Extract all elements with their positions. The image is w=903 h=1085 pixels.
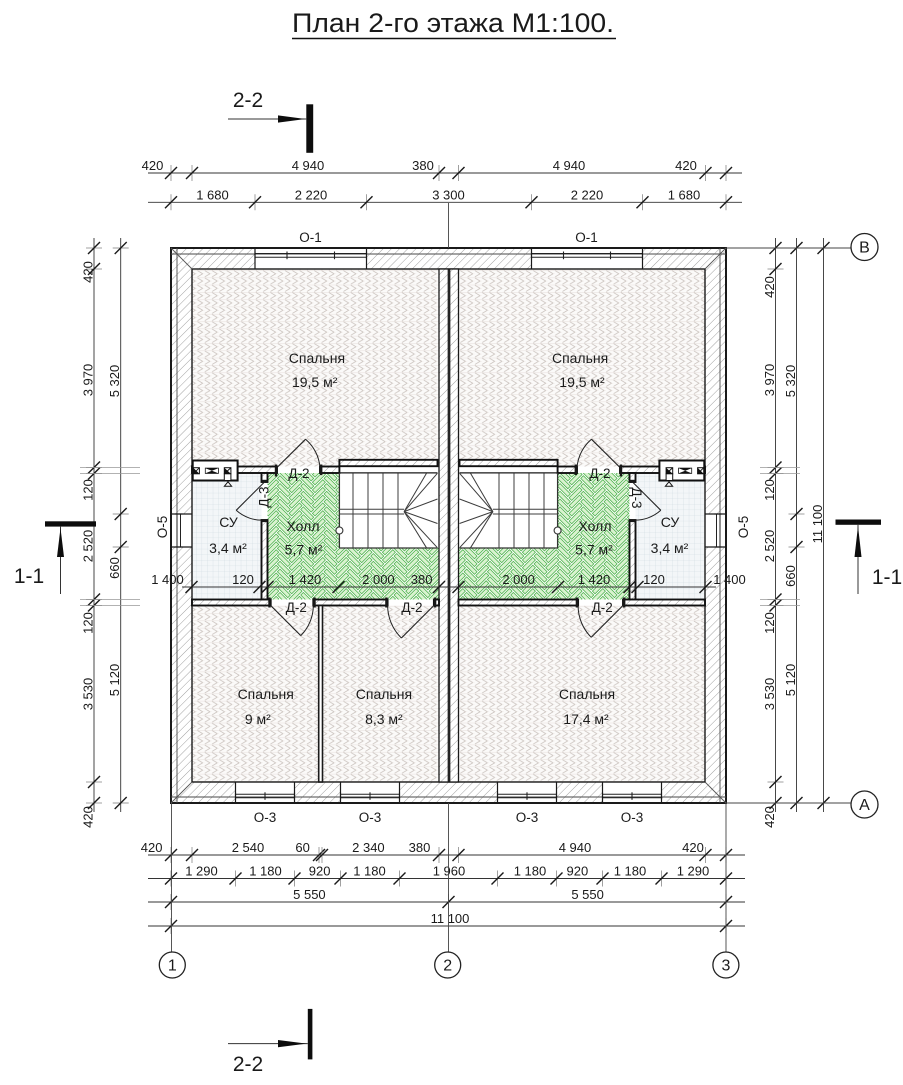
svg-text:2 220: 2 220 bbox=[295, 187, 328, 202]
svg-text:920: 920 bbox=[309, 864, 331, 879]
svg-text:3,4 м²: 3,4 м² bbox=[651, 540, 689, 556]
svg-text:9 м²: 9 м² bbox=[245, 711, 271, 727]
svg-text:Спальня: Спальня bbox=[552, 350, 608, 366]
svg-text:420: 420 bbox=[141, 840, 163, 855]
svg-text:1 180: 1 180 bbox=[353, 864, 386, 879]
svg-text:660: 660 bbox=[783, 565, 798, 587]
svg-text:2: 2 bbox=[443, 958, 452, 975]
svg-text:Холл: Холл bbox=[579, 518, 612, 534]
svg-text:Д-2: Д-2 bbox=[589, 466, 610, 481]
svg-text:1-1: 1-1 bbox=[872, 566, 902, 589]
svg-text:3 970: 3 970 bbox=[81, 364, 96, 397]
svg-text:11 100: 11 100 bbox=[431, 911, 470, 926]
svg-text:1: 1 bbox=[168, 958, 177, 975]
svg-text:4 940: 4 940 bbox=[553, 158, 586, 173]
svg-text:920: 920 bbox=[567, 864, 589, 879]
svg-text:О-1: О-1 bbox=[575, 230, 598, 245]
svg-text:1 400: 1 400 bbox=[713, 572, 746, 587]
svg-text:380: 380 bbox=[412, 158, 434, 173]
svg-text:1 960: 1 960 bbox=[433, 864, 466, 879]
svg-text:Д-2: Д-2 bbox=[288, 466, 309, 481]
svg-text:1 180: 1 180 bbox=[614, 864, 647, 879]
svg-text:2-2: 2-2 bbox=[233, 89, 263, 112]
svg-text:О-3: О-3 bbox=[359, 810, 382, 825]
svg-text:Холл: Холл bbox=[287, 518, 320, 534]
svg-text:Спальня: Спальня bbox=[289, 350, 345, 366]
svg-text:8,3 м²: 8,3 м² bbox=[365, 711, 403, 727]
svg-text:3 530: 3 530 bbox=[81, 678, 96, 711]
svg-text:5 320: 5 320 bbox=[783, 365, 798, 398]
svg-text:5,7 м²: 5,7 м² bbox=[575, 542, 613, 558]
svg-text:120: 120 bbox=[232, 572, 254, 587]
svg-text:Д-3: Д-3 bbox=[629, 487, 644, 508]
svg-text:380: 380 bbox=[409, 840, 431, 855]
svg-text:120: 120 bbox=[643, 572, 665, 587]
svg-text:План 2-го этажа М1:100.: План 2-го этажа М1:100. bbox=[292, 8, 614, 38]
svg-text:5 550: 5 550 bbox=[293, 887, 326, 902]
svg-text:5 120: 5 120 bbox=[783, 664, 798, 697]
svg-text:3 300: 3 300 bbox=[432, 187, 465, 202]
svg-text:Д-2: Д-2 bbox=[592, 600, 613, 615]
svg-text:420: 420 bbox=[675, 158, 697, 173]
svg-text:1 680: 1 680 bbox=[668, 187, 701, 202]
svg-text:3 530: 3 530 bbox=[762, 678, 777, 711]
svg-text:5,7 м²: 5,7 м² bbox=[285, 542, 323, 558]
svg-text:СУ: СУ bbox=[661, 514, 680, 530]
svg-text:1-1: 1-1 bbox=[14, 565, 44, 588]
svg-text:60: 60 bbox=[295, 840, 309, 855]
svg-text:Д-2: Д-2 bbox=[401, 600, 422, 615]
svg-text:2 520: 2 520 bbox=[762, 530, 777, 563]
svg-text:1 420: 1 420 bbox=[289, 572, 322, 587]
svg-text:120: 120 bbox=[762, 612, 777, 634]
svg-text:19,5 м²: 19,5 м² bbox=[292, 374, 338, 390]
svg-text:А: А bbox=[859, 797, 870, 814]
svg-text:О-5: О-5 bbox=[736, 516, 751, 539]
svg-text:Спальня: Спальня bbox=[356, 686, 412, 702]
svg-text:1 180: 1 180 bbox=[514, 864, 547, 879]
svg-text:5 120: 5 120 bbox=[107, 664, 122, 697]
svg-text:420: 420 bbox=[81, 806, 96, 828]
svg-text:420: 420 bbox=[762, 806, 777, 828]
svg-text:120: 120 bbox=[81, 612, 96, 634]
svg-text:О-3: О-3 bbox=[254, 810, 277, 825]
svg-text:19,5 м²: 19,5 м² bbox=[559, 374, 605, 390]
svg-text:О-1: О-1 bbox=[299, 230, 322, 245]
svg-text:420: 420 bbox=[81, 261, 96, 283]
svg-text:1 290: 1 290 bbox=[677, 864, 710, 879]
svg-text:3: 3 bbox=[721, 958, 730, 975]
svg-text:4 940: 4 940 bbox=[292, 158, 325, 173]
svg-text:120: 120 bbox=[762, 479, 777, 501]
svg-text:Спальня: Спальня bbox=[238, 686, 294, 702]
svg-text:2 000: 2 000 bbox=[362, 572, 395, 587]
svg-text:1 180: 1 180 bbox=[249, 864, 282, 879]
svg-text:3,4 м²: 3,4 м² bbox=[209, 540, 247, 556]
svg-text:660: 660 bbox=[107, 557, 122, 579]
svg-text:2 540: 2 540 bbox=[232, 840, 265, 855]
svg-text:420: 420 bbox=[142, 158, 164, 173]
svg-text:1 400: 1 400 bbox=[151, 572, 184, 587]
svg-text:Д-2: Д-2 bbox=[286, 600, 307, 615]
svg-text:1 290: 1 290 bbox=[185, 864, 218, 879]
svg-text:17,4 м²: 17,4 м² bbox=[563, 711, 609, 727]
svg-text:О-5: О-5 bbox=[155, 516, 170, 539]
svg-text:О-3: О-3 bbox=[621, 810, 644, 825]
svg-text:3 970: 3 970 bbox=[762, 364, 777, 397]
svg-text:1 680: 1 680 bbox=[196, 187, 229, 202]
svg-text:Спальня: Спальня bbox=[559, 686, 615, 702]
svg-text:5 320: 5 320 bbox=[107, 365, 122, 398]
svg-text:5 550: 5 550 bbox=[571, 887, 604, 902]
svg-text:В: В bbox=[859, 240, 870, 257]
svg-text:Д-3: Д-3 bbox=[257, 486, 272, 507]
svg-text:2 220: 2 220 bbox=[571, 187, 604, 202]
svg-text:120: 120 bbox=[81, 479, 96, 501]
svg-text:2 340: 2 340 bbox=[352, 840, 385, 855]
svg-text:2 520: 2 520 bbox=[81, 530, 96, 563]
svg-text:380: 380 bbox=[411, 572, 433, 587]
svg-text:СУ: СУ bbox=[219, 514, 238, 530]
svg-text:11 100: 11 100 bbox=[810, 505, 825, 544]
svg-text:420: 420 bbox=[682, 840, 704, 855]
svg-text:1 420: 1 420 bbox=[578, 572, 611, 587]
svg-text:2 000: 2 000 bbox=[502, 572, 535, 587]
svg-text:О-3: О-3 bbox=[516, 810, 539, 825]
svg-text:2-2: 2-2 bbox=[233, 1053, 263, 1076]
svg-text:420: 420 bbox=[762, 276, 777, 298]
svg-text:4 940: 4 940 bbox=[559, 840, 592, 855]
